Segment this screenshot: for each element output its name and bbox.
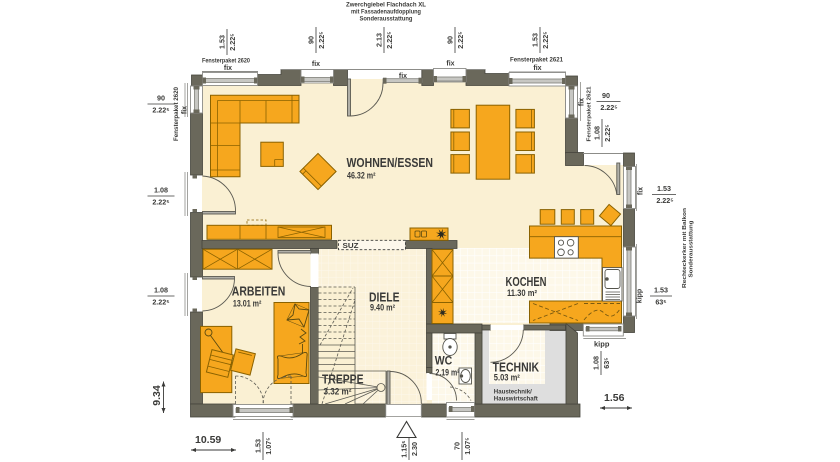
svg-text:3.32 m²: 3.32 m² <box>324 387 352 397</box>
svg-text:46.32 m²: 46.32 m² <box>347 171 376 181</box>
svg-text:90: 90 <box>157 94 165 103</box>
svg-text:Sonderausstattung: Sonderausstattung <box>689 221 695 278</box>
svg-text:SUZ: SUZ <box>343 243 360 250</box>
svg-text:fix: fix <box>533 65 541 72</box>
svg-text:1.53: 1.53 <box>218 35 227 49</box>
svg-text:1.08: 1.08 <box>593 126 602 140</box>
svg-text:TREPPE: TREPPE <box>322 372 364 387</box>
svg-text:2.22⁵: 2.22⁵ <box>656 196 673 205</box>
svg-text:1.53: 1.53 <box>254 439 263 453</box>
svg-text:2.22⁵: 2.22⁵ <box>152 198 169 207</box>
svg-text:9.34: 9.34 <box>151 385 163 406</box>
svg-text:1.07⁵: 1.07⁵ <box>264 437 273 454</box>
svg-text:1.08: 1.08 <box>154 186 168 195</box>
svg-text:fix: fix <box>182 106 189 114</box>
svg-text:1.15⁵: 1.15⁵ <box>400 440 409 457</box>
svg-text:2.19 m²: 2.19 m² <box>436 368 460 378</box>
svg-text:2.22⁵: 2.22⁵ <box>603 124 612 141</box>
svg-text:1.53: 1.53 <box>657 184 671 193</box>
svg-text:Fensterpaket 2621: Fensterpaket 2621 <box>510 57 563 64</box>
svg-text:10.59: 10.59 <box>195 434 221 446</box>
svg-text:2.22⁵: 2.22⁵ <box>317 31 326 48</box>
svg-text:63⁵: 63⁵ <box>602 357 611 368</box>
svg-text:90: 90 <box>602 91 610 100</box>
svg-text:2.22⁵: 2.22⁵ <box>541 31 550 48</box>
svg-text:1.07⁵: 1.07⁵ <box>463 437 472 454</box>
svg-text:70: 70 <box>453 442 462 450</box>
svg-text:63⁵: 63⁵ <box>655 298 666 307</box>
svg-text:2.22⁵: 2.22⁵ <box>385 31 394 48</box>
svg-text:1.56: 1.56 <box>604 392 625 404</box>
svg-text:mit Fassadenaufdopplung: mit Fassadenaufdopplung <box>351 9 421 16</box>
svg-text:90: 90 <box>446 36 455 44</box>
svg-text:WOHNEN/ESSEN: WOHNEN/ESSEN <box>347 155 434 170</box>
svg-text:Fensterpaket 2620: Fensterpaket 2620 <box>202 58 250 65</box>
svg-text:ARBEITEN: ARBEITEN <box>232 284 285 299</box>
svg-text:2.22⁵: 2.22⁵ <box>456 31 465 48</box>
svg-text:13.01 m²: 13.01 m² <box>233 299 262 309</box>
svg-text:2.22⁵: 2.22⁵ <box>152 298 169 307</box>
svg-text:KOCHEN: KOCHEN <box>506 274 547 289</box>
svg-text:5.03 m²: 5.03 m² <box>494 373 520 383</box>
svg-text:kipp: kipp <box>637 289 644 303</box>
svg-text:fix: fix <box>446 61 454 68</box>
svg-text:90: 90 <box>307 36 316 44</box>
svg-text:Zwerchgiebel Flachdach XL: Zwerchgiebel Flachdach XL <box>346 2 426 9</box>
svg-text:2.13: 2.13 <box>375 33 384 47</box>
svg-text:fix: fix <box>399 73 407 80</box>
svg-text:Hauswirtschaft: Hauswirtschaft <box>494 396 539 403</box>
svg-text:Sonderausstattung: Sonderausstattung <box>360 16 413 23</box>
svg-text:2.30: 2.30 <box>410 442 419 456</box>
svg-text:Fensterpaket 2620: Fensterpaket 2620 <box>174 86 180 141</box>
svg-text:Rechteckerker mit Balkon: Rechteckerker mit Balkon <box>682 207 688 288</box>
svg-text:1.53: 1.53 <box>531 33 540 47</box>
svg-text:2.22⁵: 2.22⁵ <box>228 33 237 50</box>
svg-text:2.22⁵: 2.22⁵ <box>152 106 169 115</box>
svg-text:kipp: kipp <box>594 340 610 349</box>
svg-text:fix: fix <box>312 61 320 68</box>
svg-text:1.08: 1.08 <box>592 356 601 370</box>
svg-text:1.08: 1.08 <box>154 286 168 295</box>
svg-text:fix: fix <box>224 65 232 72</box>
svg-text:fix: fix <box>579 98 586 106</box>
svg-text:9.40 m²: 9.40 m² <box>370 303 395 313</box>
svg-text:1.53: 1.53 <box>654 286 668 295</box>
svg-text:fix: fix <box>638 187 645 195</box>
svg-text:2.22⁵: 2.22⁵ <box>600 103 617 112</box>
svg-text:Haustechnik/: Haustechnik/ <box>494 389 532 396</box>
svg-text:WC: WC <box>435 354 453 368</box>
svg-text:11.30 m²: 11.30 m² <box>507 288 537 298</box>
